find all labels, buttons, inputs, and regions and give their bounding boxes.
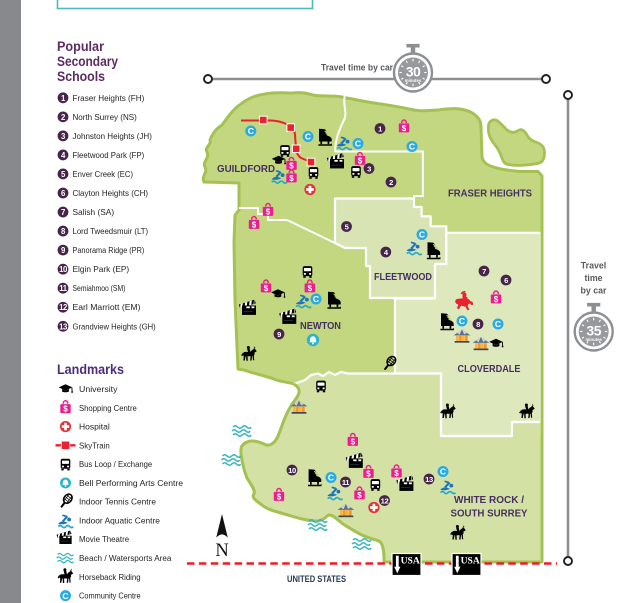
svg-text:Landmarks: Landmarks	[57, 362, 124, 377]
svg-text:9: 9	[277, 330, 281, 339]
svg-text:Indoor Aquatic Centre: Indoor Aquatic Centre	[79, 515, 160, 525]
svg-text:SOUTH SURREY: SOUTH SURREY	[451, 509, 528, 520]
svg-text:North Surrey (NS): North Surrey (NS)	[73, 112, 137, 122]
svg-text:Travel: Travel	[581, 261, 606, 271]
svg-text:11: 11	[59, 284, 68, 293]
svg-text:Travel time by car: Travel time by car	[321, 63, 393, 73]
svg-text:UNITED STATES: UNITED STATES	[287, 574, 346, 584]
svg-text:FLEETWOOD: FLEETWOOD	[374, 272, 432, 283]
svg-text:Lord Tweedsmuir (LT): Lord Tweedsmuir (LT)	[73, 226, 149, 236]
svg-text:Secondary: Secondary	[57, 54, 118, 69]
svg-text:Hospital: Hospital	[79, 422, 110, 432]
svg-text:Semiahmoo (SM): Semiahmoo (SM)	[73, 283, 126, 293]
svg-text:Shopping Centre: Shopping Centre	[79, 403, 137, 413]
svg-text:SkyTrain: SkyTrain	[79, 440, 110, 450]
svg-text:Enver Creek (EC): Enver Creek (EC)	[73, 169, 134, 179]
svg-text:3: 3	[367, 164, 371, 173]
svg-text:6: 6	[504, 276, 508, 285]
svg-text:Popular: Popular	[57, 39, 105, 54]
svg-text:Schools: Schools	[57, 69, 105, 84]
svg-text:Johnston Heights (JH): Johnston Heights (JH)	[73, 131, 153, 141]
svg-text:Salish (SA): Salish (SA)	[73, 207, 115, 217]
svg-text:FRASER HEIGHTS: FRASER HEIGHTS	[448, 189, 532, 200]
svg-text:10: 10	[288, 466, 296, 475]
svg-text:Fraser Heights (FH): Fraser Heights (FH)	[73, 93, 145, 103]
svg-text:2: 2	[389, 178, 393, 187]
svg-text:8: 8	[476, 320, 480, 329]
svg-text:CLOVERDALE: CLOVERDALE	[458, 364, 521, 375]
svg-text:Elgin Park (EP): Elgin Park (EP)	[73, 264, 130, 274]
svg-text:University: University	[79, 384, 118, 394]
svg-text:minutes: minutes	[405, 78, 422, 83]
svg-text:Community Centre: Community Centre	[79, 591, 141, 601]
svg-text:7: 7	[482, 267, 486, 276]
svg-text:by car: by car	[581, 286, 607, 296]
svg-text:Fleetwood Park (FP): Fleetwood Park (FP)	[73, 150, 145, 160]
svg-text:GUILDFORD: GUILDFORD	[217, 164, 275, 175]
svg-text:Bus Loop / Exchange: Bus Loop / Exchange	[79, 459, 152, 469]
svg-text:Movie Theatre: Movie Theatre	[79, 534, 129, 544]
svg-text:12: 12	[59, 303, 68, 312]
svg-text:13: 13	[59, 322, 68, 331]
svg-text:12: 12	[381, 496, 389, 505]
svg-text:13: 13	[425, 475, 433, 484]
svg-text:Earl Marriott (EM): Earl Marriott (EM)	[73, 302, 141, 312]
svg-text:Grandview Heights (GH): Grandview Heights (GH)	[73, 321, 156, 331]
svg-text:time: time	[584, 273, 602, 283]
svg-text:Bell Performing Arts Centre: Bell Performing Arts Centre	[79, 478, 183, 488]
svg-text:minutes: minutes	[585, 337, 602, 342]
svg-text:WHITE ROCK /: WHITE ROCK /	[454, 495, 524, 506]
svg-text:Beach / Watersports Area: Beach / Watersports Area	[79, 553, 172, 563]
svg-text:Horseback Riding: Horseback Riding	[79, 572, 141, 582]
svg-text:Panorama Ridge (PR): Panorama Ridge (PR)	[73, 245, 145, 255]
svg-text:10: 10	[59, 265, 68, 274]
svg-text:11: 11	[342, 478, 350, 487]
svg-text:Clayton Heights (CH): Clayton Heights (CH)	[73, 188, 149, 198]
svg-text:N: N	[215, 541, 228, 561]
svg-text:Indoor Tennis Centre: Indoor Tennis Centre	[79, 497, 156, 507]
svg-text:NEWTON: NEWTON	[300, 321, 341, 332]
svg-text:7: 7	[61, 208, 65, 217]
